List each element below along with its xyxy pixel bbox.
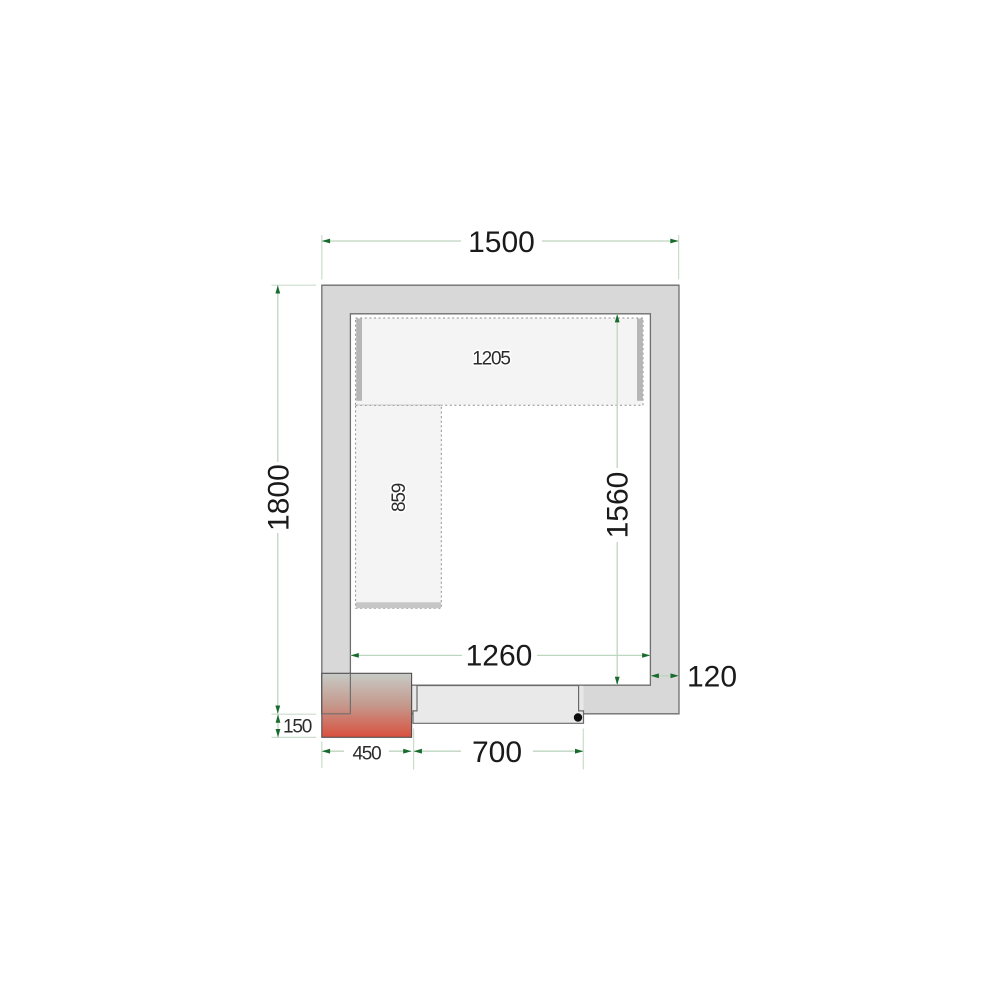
svg-text:859: 859 [389,483,410,512]
svg-text:120: 120 [687,661,737,694]
svg-text:450: 450 [352,743,381,764]
svg-text:1260: 1260 [466,639,533,672]
svg-text:700: 700 [472,736,522,769]
svg-text:1560: 1560 [602,472,635,539]
svg-text:1205: 1205 [472,348,510,369]
svg-text:150: 150 [283,716,312,737]
svg-text:1500: 1500 [468,226,535,259]
svg-text:1800: 1800 [263,464,296,531]
